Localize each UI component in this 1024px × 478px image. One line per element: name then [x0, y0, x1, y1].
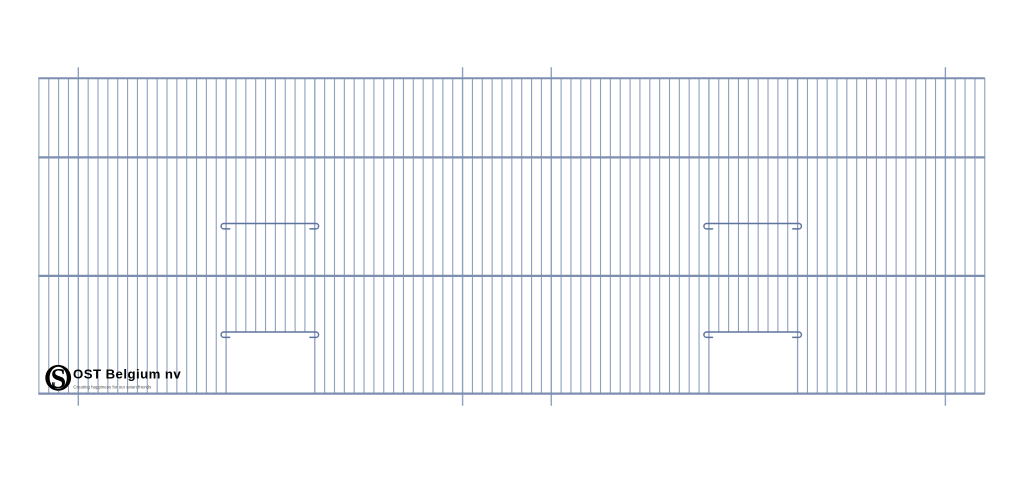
svg-text:Creating happiness for our avi: Creating happiness for our avian friends [73, 384, 152, 389]
svg-text:J: J [52, 381, 56, 391]
svg-text:OST Belgium nv: OST Belgium nv [73, 367, 181, 382]
